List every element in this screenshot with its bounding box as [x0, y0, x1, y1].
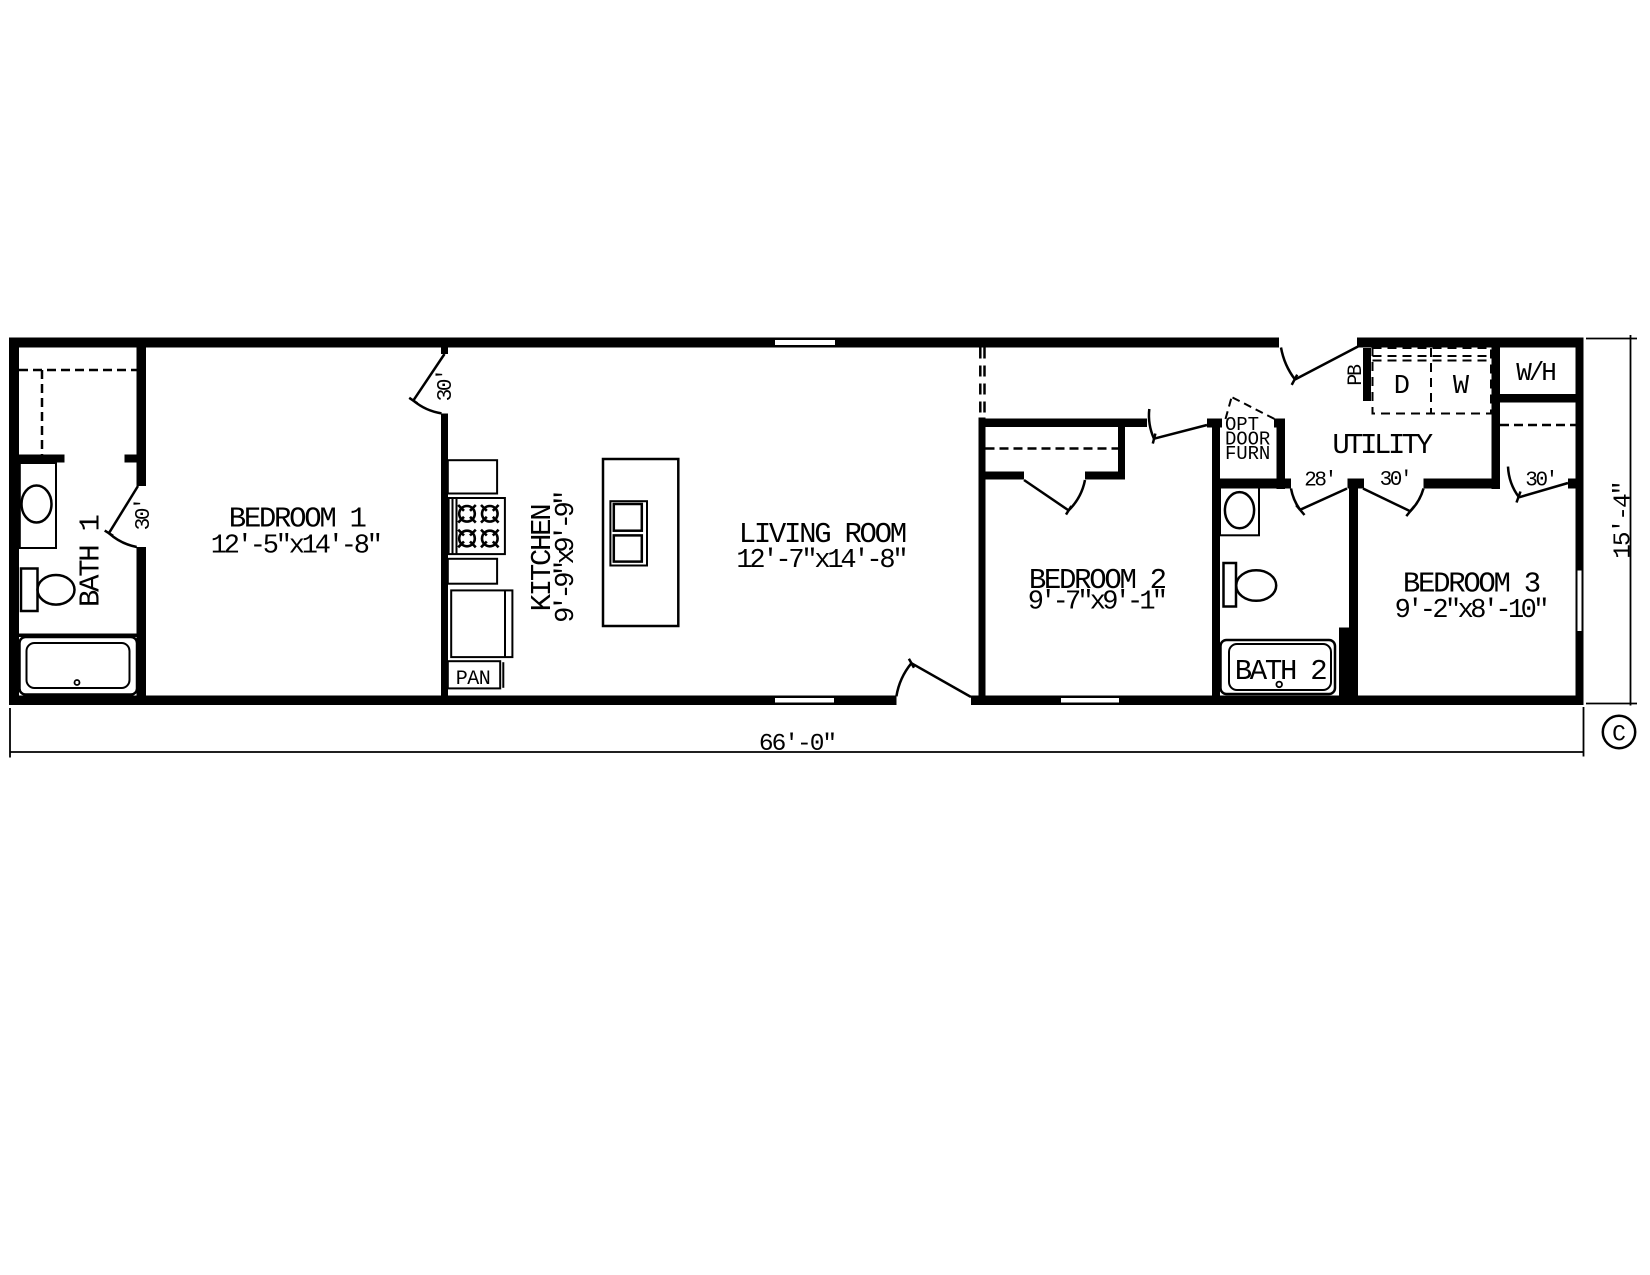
svg-text:66'-0": 66'-0" — [759, 731, 835, 758]
svg-text:9'-9"x9'-9": 9'-9"x9'-9" — [552, 493, 582, 623]
svg-text:UTILITY: UTILITY — [1332, 429, 1432, 462]
svg-text:9'-2"x8'-10": 9'-2"x8'-10" — [1395, 596, 1547, 626]
svg-text:PAN: PAN — [456, 668, 491, 691]
svg-text:PB: PB — [1345, 364, 1368, 386]
svg-text:12'-5"x14'-8": 12'-5"x14'-8" — [211, 531, 380, 561]
svg-text:30': 30' — [1380, 469, 1411, 492]
svg-text:W: W — [1453, 372, 1470, 402]
svg-text:15'-4": 15'-4" — [1610, 483, 1637, 559]
svg-text:C: C — [1612, 721, 1626, 747]
svg-text:BATH 2: BATH 2 — [1235, 655, 1327, 688]
svg-text:30': 30' — [1525, 469, 1556, 492]
svg-text:30': 30' — [435, 371, 458, 402]
svg-text:30': 30' — [133, 500, 156, 531]
svg-text:FURN: FURN — [1225, 443, 1270, 465]
svg-text:28': 28' — [1304, 469, 1335, 492]
svg-text:BATH 1: BATH 1 — [75, 515, 108, 607]
svg-text:9'-7"x9'-1": 9'-7"x9'-1" — [1028, 588, 1165, 618]
svg-text:D: D — [1394, 372, 1410, 402]
svg-text:W/H: W/H — [1516, 358, 1555, 388]
svg-text:12'-7"x14'-8": 12'-7"x14'-8" — [736, 546, 905, 576]
